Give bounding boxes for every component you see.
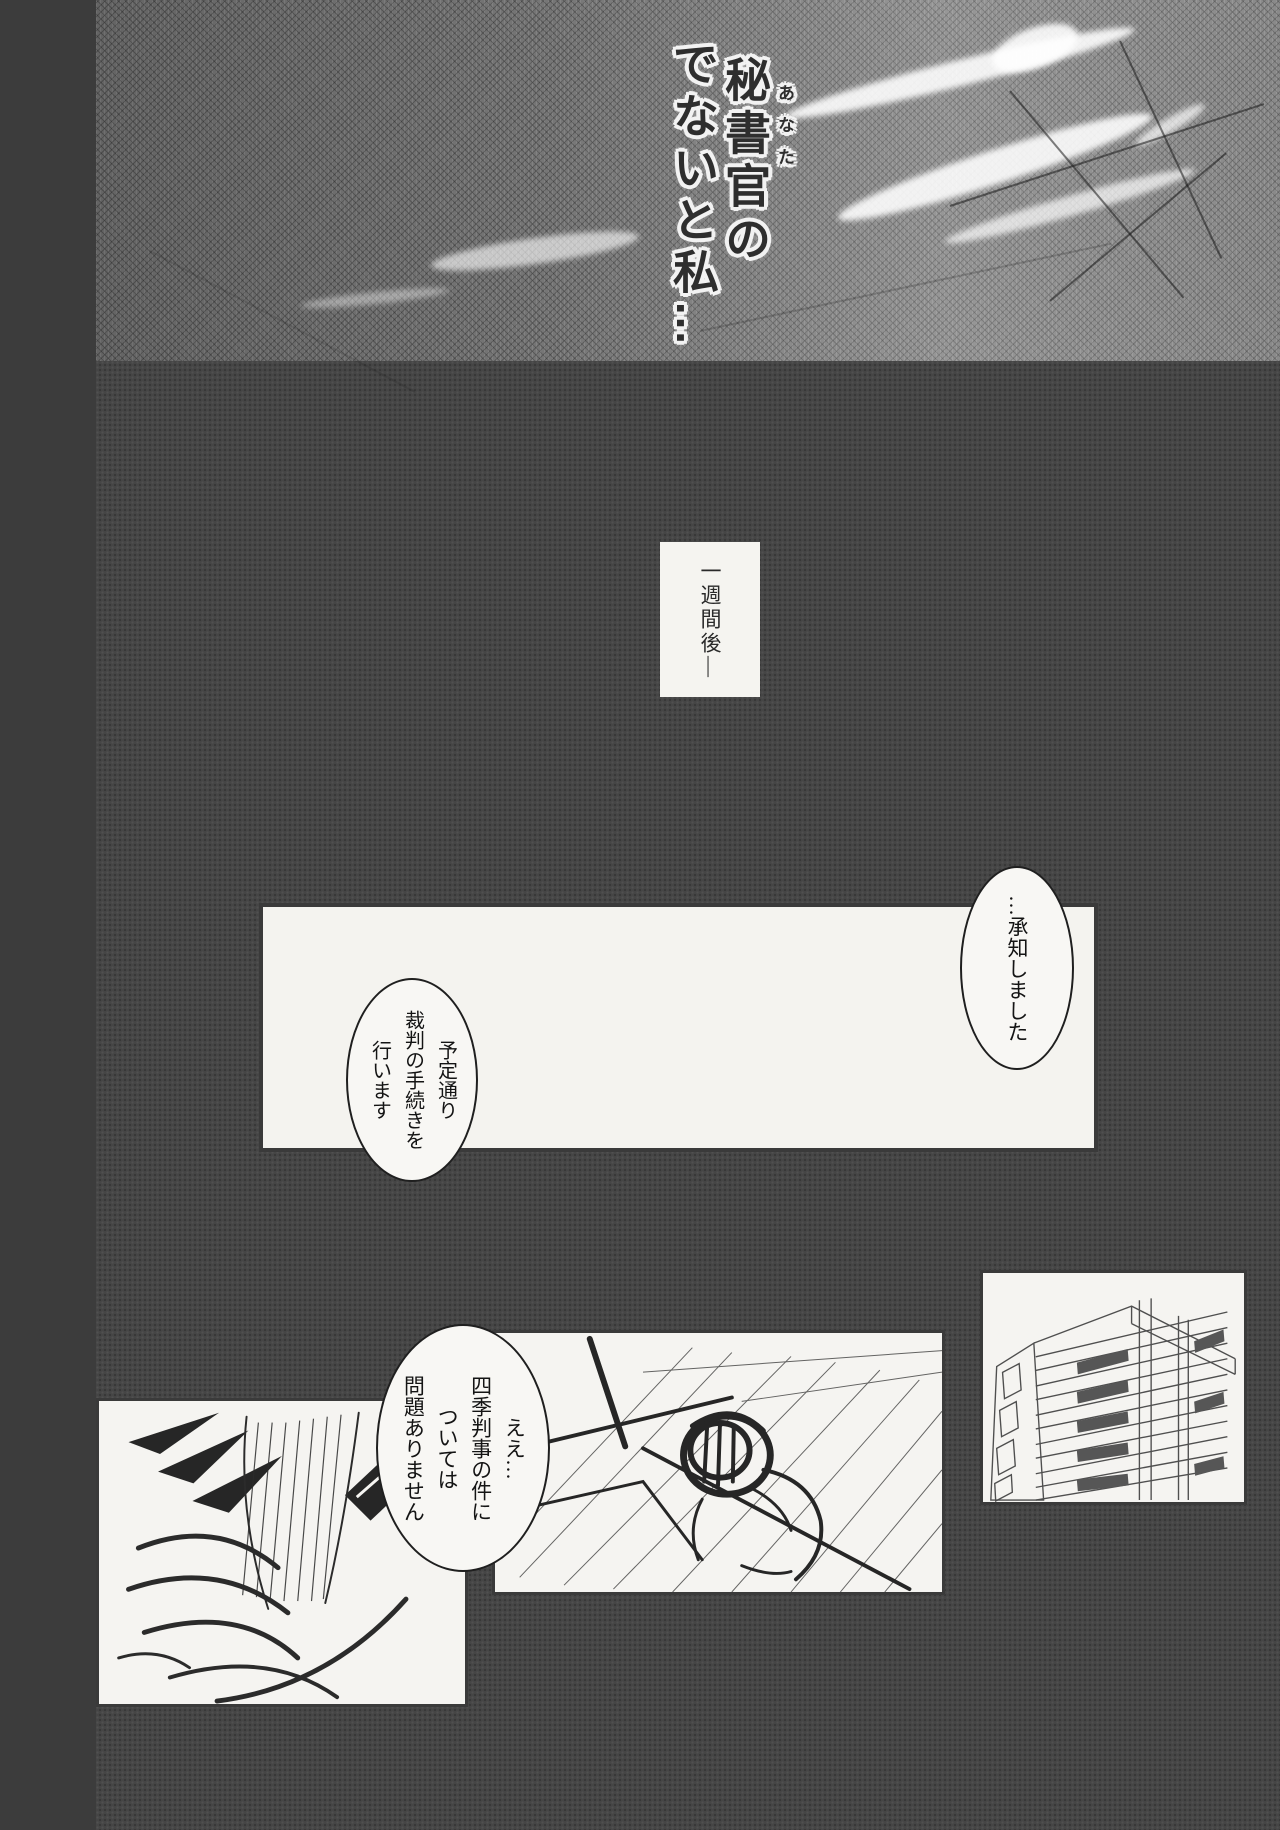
left-margin-strip bbox=[0, 0, 96, 1830]
light-streak bbox=[833, 100, 1157, 234]
narration-box: 一週間後― bbox=[660, 542, 760, 697]
narration-text: 一週間後― bbox=[695, 560, 725, 680]
manga-page: 秘書官の あなた でないと私… 一週間後― bbox=[0, 0, 1280, 1830]
scratch-line bbox=[1049, 152, 1226, 301]
building-line-art bbox=[983, 1273, 1244, 1502]
page-title-furigana: あなた bbox=[772, 84, 797, 180]
office-sketch-panel bbox=[492, 1330, 945, 1595]
light-streak bbox=[429, 224, 641, 279]
light-streak bbox=[300, 284, 450, 312]
scratch-line bbox=[1119, 41, 1222, 259]
speech-bubble-acknowledge: …承知しました bbox=[960, 866, 1074, 1070]
page-title-tail: でないと私… bbox=[660, 40, 726, 352]
building-panel bbox=[980, 1270, 1247, 1505]
speech-text: 予定通り 裁判の手続きを 行います bbox=[363, 1010, 462, 1150]
speech-text: ええ… 四季判事の件に ついては 問題ありません bbox=[396, 1375, 530, 1522]
speech-bubble-procedure: 予定通り 裁判の手続きを 行います bbox=[346, 978, 478, 1182]
figure-sketch bbox=[495, 1333, 942, 1592]
scratch-line bbox=[150, 250, 416, 393]
speech-text: …承知しました bbox=[1002, 895, 1032, 1042]
light-streak bbox=[782, 17, 1138, 129]
speech-bubble-report: ええ… 四季判事の件に ついては 問題ありません bbox=[376, 1324, 550, 1572]
